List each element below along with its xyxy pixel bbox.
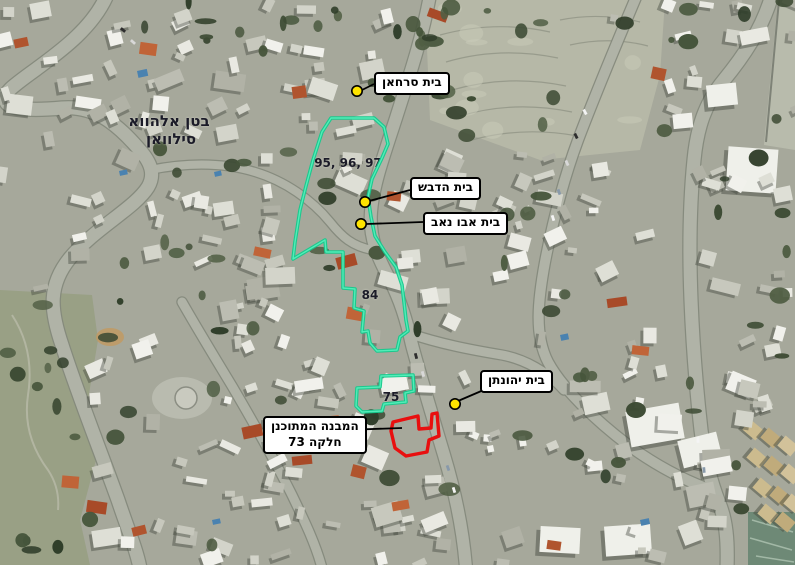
callout-text-line1: המבנה המתוכנן — [271, 419, 359, 435]
marker-beit-hadvash — [360, 197, 370, 207]
callout-beit-hadvash: בית הדבש — [410, 177, 481, 200]
marker-beit-abu-nab — [356, 219, 366, 229]
leader-line-beit-sarhan — [362, 84, 374, 90]
callout-text: בית אבו נאב — [431, 215, 500, 231]
callout-text: בית יהונתן — [488, 373, 545, 389]
callout-planned-structure-plot-73: המבנה המתוכנן חלקה 73 — [263, 416, 367, 454]
callout-beit-sarhan: בית סרחאן — [374, 72, 450, 95]
parcel-group-95-96-97-84 — [293, 118, 408, 351]
callout-text: בית הדבש — [418, 180, 473, 196]
callout-beit-yehonatan: בית יהונתן — [480, 370, 553, 393]
callout-text-line2: חלקה 73 — [271, 435, 359, 451]
marker-beit-sarhan — [352, 86, 362, 96]
leader-line-beit-abu-nab — [366, 222, 423, 224]
callout-beit-abu-nab: בית אבו נאב — [423, 212, 508, 235]
leader-line-beit-hadvash — [369, 190, 410, 201]
annotated-aerial-map: בית סרחאן בית הדבש בית אבו נאב בית יהונת… — [0, 0, 795, 565]
planned-building-plot-73 — [391, 413, 439, 456]
marker-beit-yehonatan — [450, 399, 460, 409]
callout-text: בית סרחאן — [382, 75, 442, 91]
